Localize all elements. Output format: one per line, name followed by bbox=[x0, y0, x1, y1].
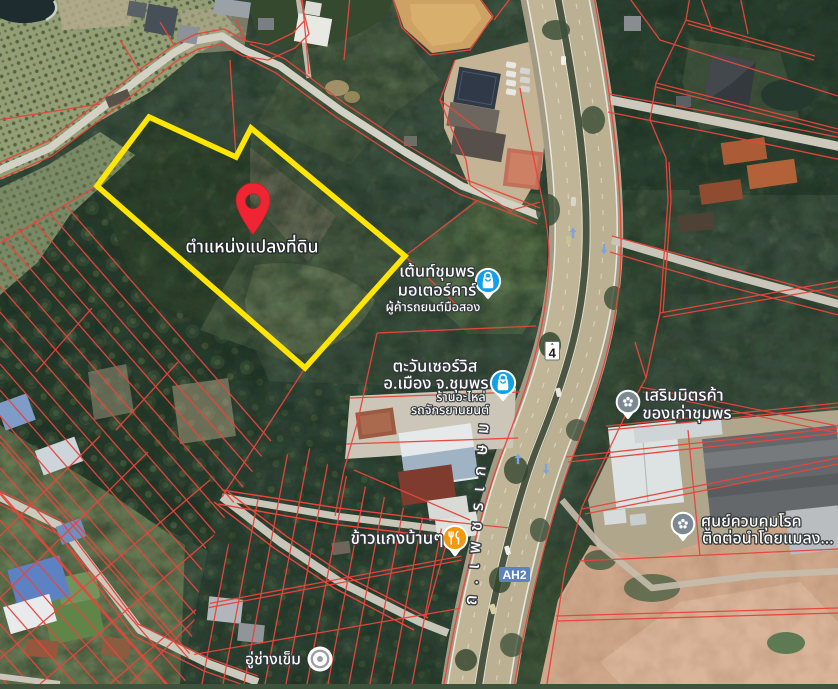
svg-text:AH2: AH2 bbox=[502, 568, 526, 582]
svg-text:4: 4 bbox=[549, 346, 557, 361]
